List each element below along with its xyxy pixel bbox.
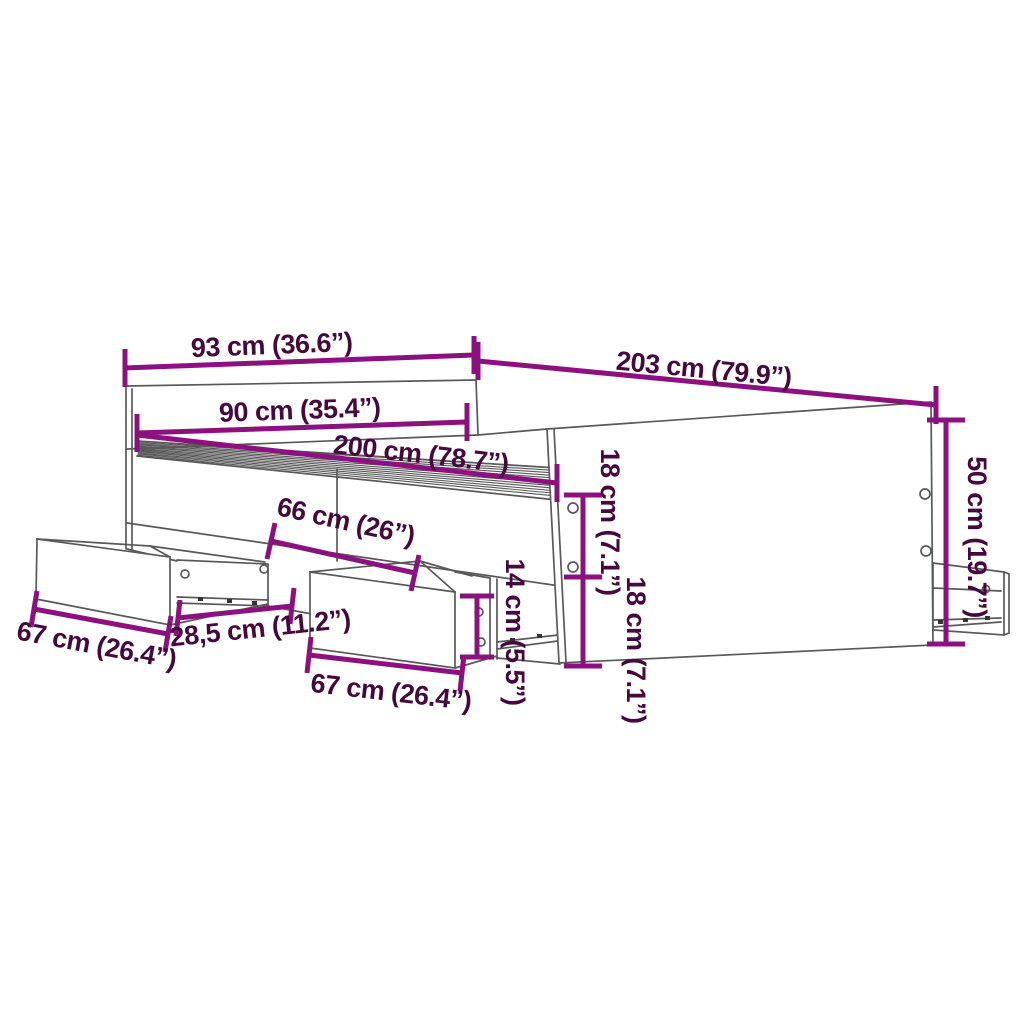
slide-screw xyxy=(198,597,203,601)
slide-screw xyxy=(227,599,232,603)
drawer-opening-left xyxy=(177,560,268,606)
label-drawer-front-height: 14 cm (5.5”) xyxy=(500,558,530,705)
label-drawer-opening-span: 66 cm (26”) xyxy=(274,491,417,551)
label-frame-total-length: 203 cm (79.9”) xyxy=(615,346,793,393)
bed-frame-dimension-diagram: 93 cm (36.6”) 203 cm (79.9”) 90 cm (35.4… xyxy=(0,0,1024,1024)
label-rail-upper-height: 18 cm (7.1”) xyxy=(595,448,625,595)
slide-screw xyxy=(963,618,968,622)
label-headboard-outer-width: 93 cm (36.6”) xyxy=(190,327,353,363)
dimension-drawer-front-height xyxy=(460,596,494,657)
label-drawer-left-width: 67 cm (26.4”) xyxy=(14,616,178,675)
slide-screw xyxy=(252,601,257,605)
diagram-page: 93 cm (36.6”) 203 cm (79.9”) 90 cm (35.4… xyxy=(0,0,1024,1024)
label-rail-lower-height: 18 cm (7.1”) xyxy=(621,576,651,723)
label-inner-width: 90 cm (35.4”) xyxy=(218,392,381,428)
slide-screw xyxy=(537,634,542,638)
slide-screw xyxy=(938,620,943,624)
label-side-panel-height: 50 cm (19.7”) xyxy=(962,456,992,618)
label-drawer-middle-width: 67 cm (26.4”) xyxy=(309,668,473,716)
